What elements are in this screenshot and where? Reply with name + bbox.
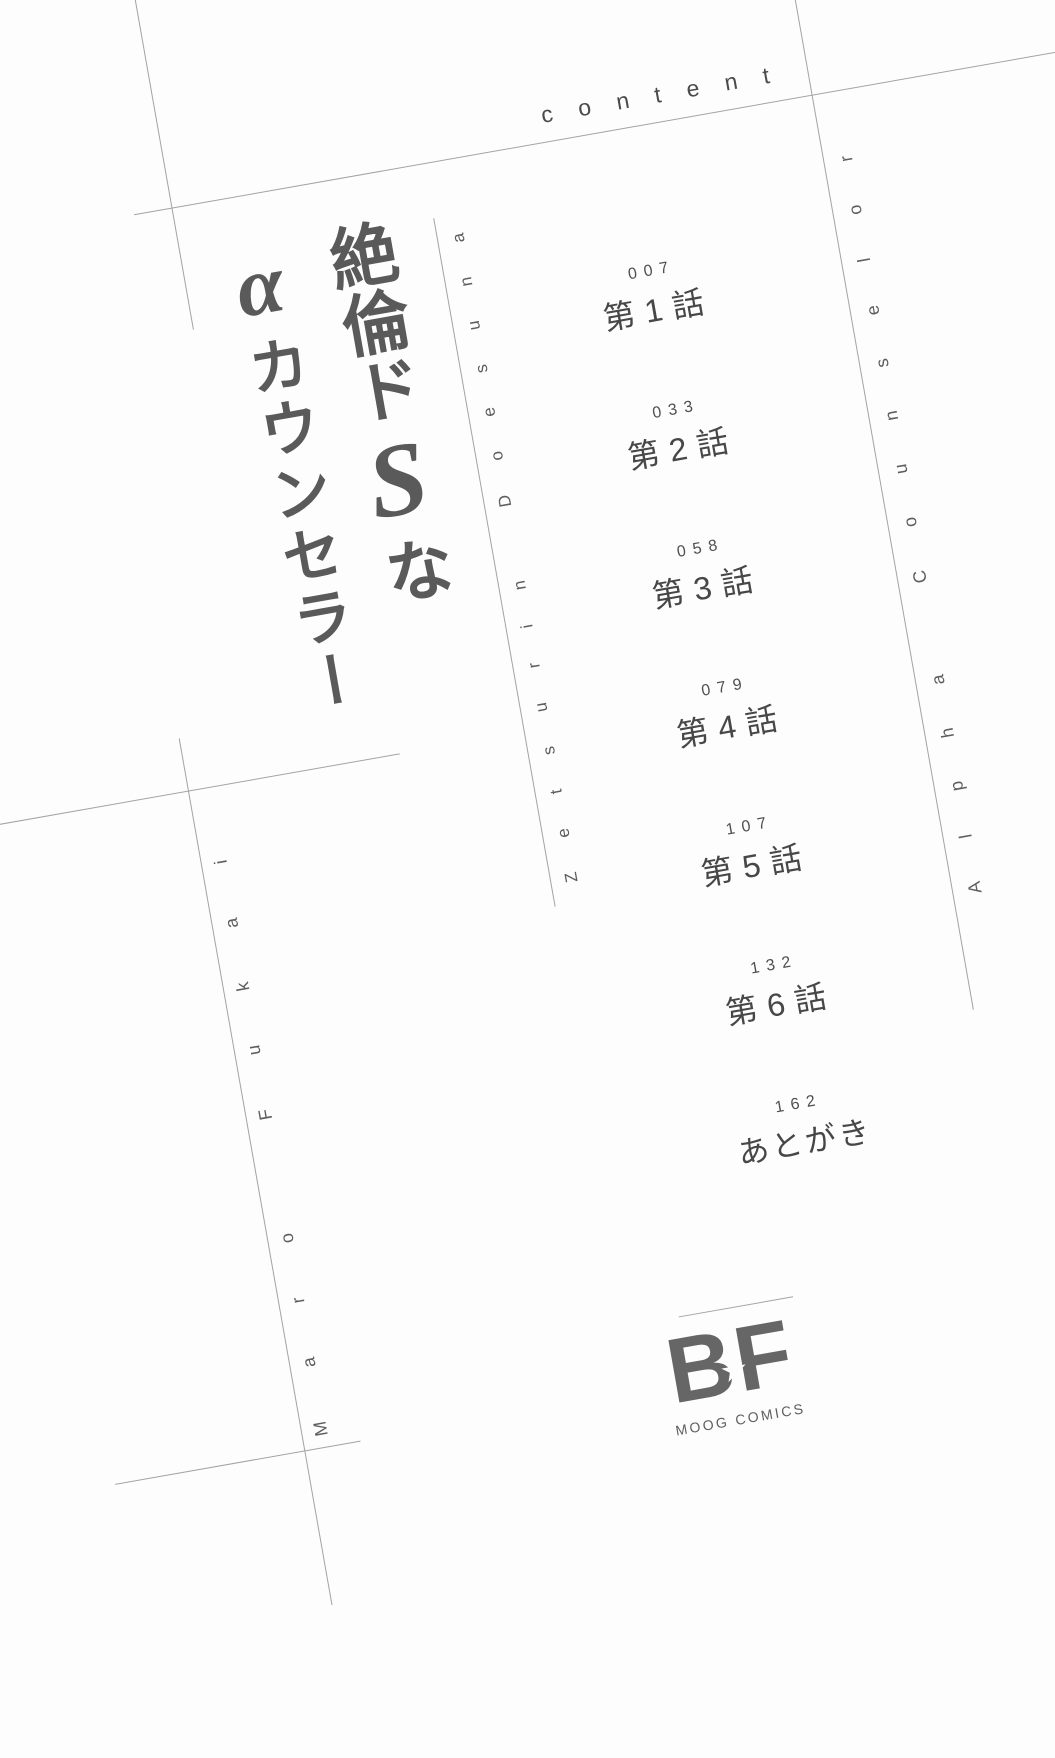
rule-top-left-vertical: [126, 0, 194, 330]
toc-entry-7: 162 あとがき: [649, 1069, 956, 1186]
toc-entry-3: 058 第3話: [551, 514, 858, 631]
rule-content-horizontal: [134, 45, 1055, 215]
toc-page: { "page": { "content_label": "content", …: [0, 0, 1055, 1500]
rule-bottom-left-horizontal: [115, 1441, 360, 1485]
toc-entry-5: 107 第5話: [600, 792, 907, 909]
publisher-logo: BF★ MOOG COMICS: [604, 1294, 860, 1448]
star-icon: ★: [717, 1351, 753, 1388]
toc-entry-6: 132 第6話: [625, 931, 932, 1048]
toc-entry-4: 079 第4話: [576, 653, 883, 770]
rule-author-vertical: [179, 738, 333, 1605]
toc-entry-2: 033 第2話: [527, 375, 834, 492]
title-letter-alpha: α: [206, 232, 314, 344]
romaji-subtitle-text: Alpha Counselor: [826, 123, 989, 896]
title-letter-s: S: [331, 413, 464, 546]
toc-entry-1: 007 第1話: [502, 236, 809, 353]
rotated-stage: content 絶倫ドSな αカウンセラー Zetsurin Doesuna A…: [0, 0, 1055, 1758]
author-romaji-text: Maro Fukai: [197, 803, 336, 1438]
